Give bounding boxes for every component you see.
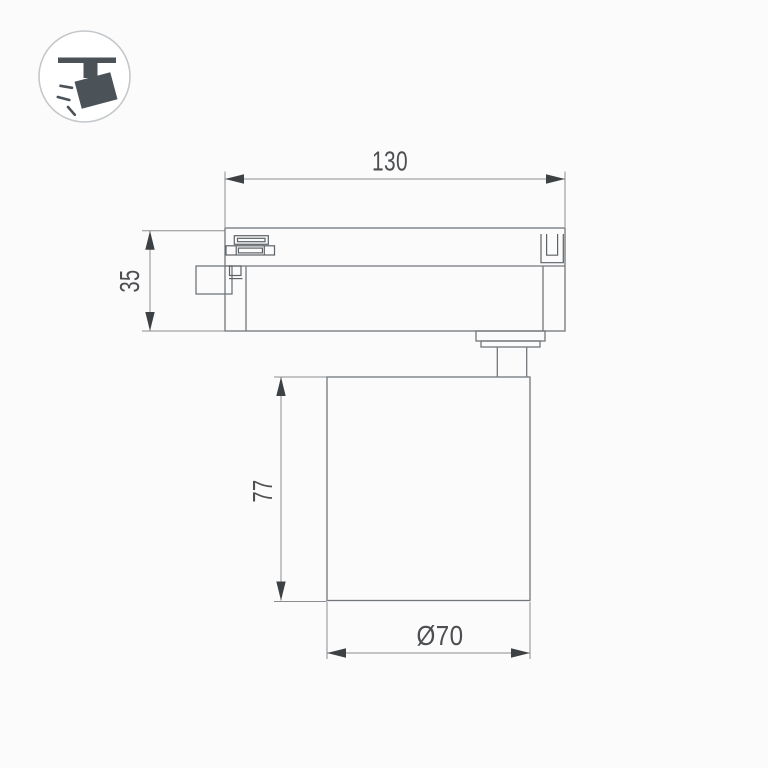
contact-clip-lower-inner <box>238 248 262 253</box>
technical-drawing-svg: 130 35 77 Ø70 <box>0 0 768 768</box>
u-bracket-inner <box>547 234 558 255</box>
adapter-side-lever <box>196 266 232 294</box>
dimension-arrows <box>145 174 565 657</box>
arrow-diameter-right <box>511 648 530 657</box>
dim-label-adapter-height: 35 <box>114 270 145 293</box>
stem-flange-lower <box>481 341 540 347</box>
arrow-head-top <box>276 377 285 396</box>
dimension-labels: 130 35 77 Ø70 <box>114 146 464 652</box>
lamp-head-body <box>327 377 530 601</box>
dim-label-head-height: 77 <box>247 480 278 503</box>
arrow-length-left <box>225 174 244 183</box>
icon-track-bar <box>58 58 116 64</box>
icon-stem <box>84 63 98 79</box>
arrow-head-bottom <box>276 582 285 601</box>
arrow-adapter-top <box>145 231 154 250</box>
track-adapter-body <box>225 228 565 331</box>
contact-clip-upper-outer <box>234 236 268 245</box>
latch-detail <box>230 266 242 276</box>
adapter-details <box>226 234 563 279</box>
arrow-length-right <box>546 174 565 183</box>
drawing-canvas: 130 35 77 Ø70 <box>0 0 768 768</box>
arrow-adapter-bottom <box>145 312 154 331</box>
stem-flange-upper <box>476 331 545 341</box>
fixture-outlines <box>196 228 565 601</box>
contact-clip-lower-outer <box>226 246 275 255</box>
dim-label-diameter: Ø70 <box>417 620 464 651</box>
dim-label-length: 130 <box>372 146 408 177</box>
contact-clip-upper-inner <box>238 238 266 241</box>
product-type-badge <box>39 31 130 122</box>
dimension-lines <box>142 172 565 660</box>
u-bracket-outer <box>541 234 563 263</box>
arrow-diameter-left <box>327 648 346 657</box>
